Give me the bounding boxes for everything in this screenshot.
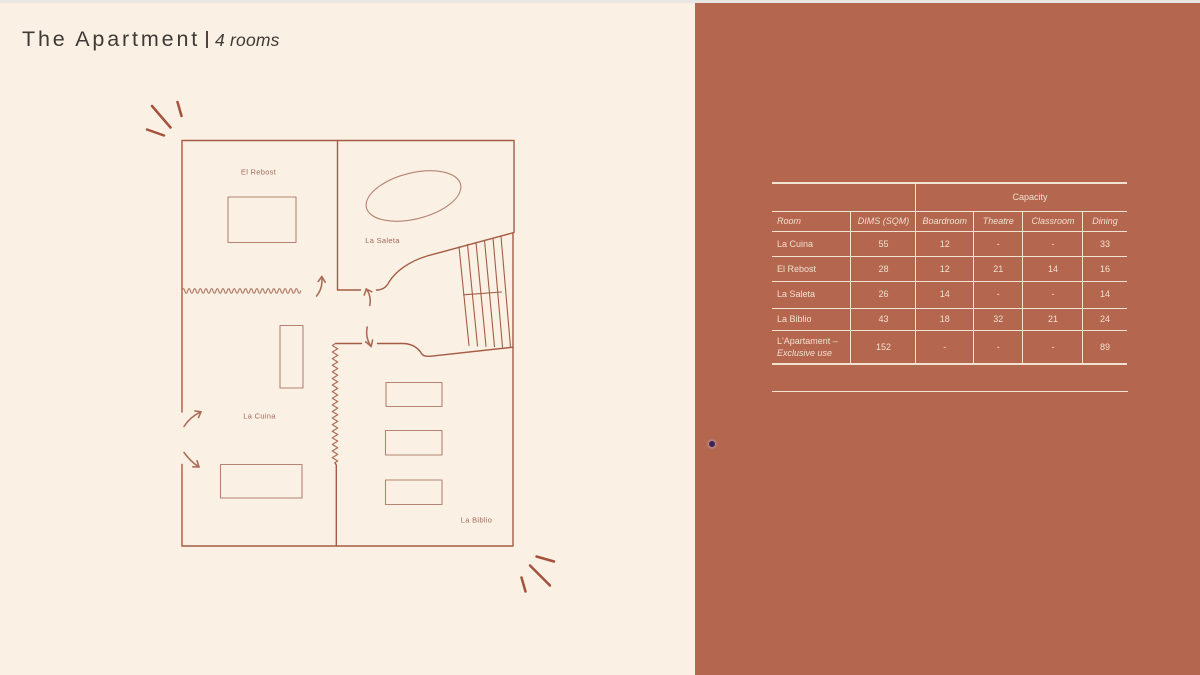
svg-text:La Cuina: La Cuina	[243, 412, 276, 421]
svg-text:El Rebost: El Rebost	[241, 168, 277, 177]
svg-text:La Biblio: La Biblio	[461, 516, 492, 525]
svg-text:La Saleta: La Saleta	[365, 236, 400, 245]
